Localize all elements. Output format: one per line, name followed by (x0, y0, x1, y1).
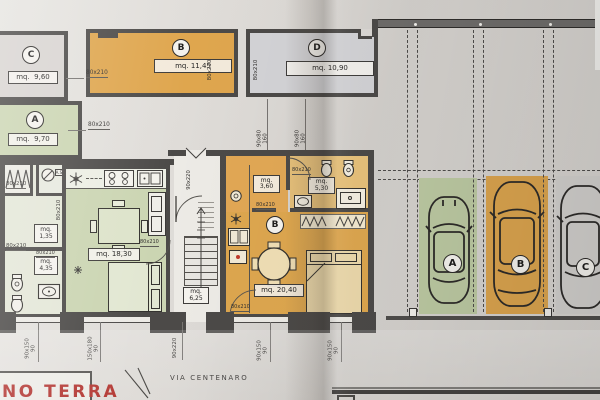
wall-dot (414, 23, 417, 26)
post (409, 308, 417, 317)
plan-title: NO TERRA (2, 382, 119, 400)
sink-bath-icon (294, 195, 312, 208)
door-dim: 80x210 (6, 243, 26, 251)
parking-divider-dashed (473, 30, 484, 312)
window-dim-vertical: 90x150 90 (327, 336, 340, 366)
door-dim-vertical: 80x210 (206, 54, 214, 86)
wall-notch-d (358, 29, 372, 39)
window (84, 316, 150, 323)
stove-icon (104, 170, 134, 187)
toilet-icon (320, 160, 333, 177)
window-dim-vertical: 90x150 90 (256, 336, 269, 366)
stove-icon (229, 250, 247, 264)
room-c-letter: C (28, 50, 35, 60)
leader-line (182, 322, 183, 360)
bath-530-area: mq. 5,30 (308, 177, 335, 194)
room-d-letter: D (313, 43, 320, 53)
chair (141, 220, 148, 233)
bidet-icon (10, 274, 24, 292)
bed-line (307, 264, 361, 265)
stairs-direction-arrow (196, 206, 206, 290)
apartmentB-letter: B (272, 220, 279, 230)
area-line2: 6,25 (189, 296, 202, 303)
window-dim-vertical: 90x80 160 (256, 126, 269, 152)
parking-c-badge: C (576, 258, 595, 277)
parking-a-letter: A (449, 258, 457, 269)
fan-icon (69, 172, 83, 186)
car-c (556, 182, 600, 312)
paper-edge (595, 0, 600, 70)
titleblock-logo-box (337, 395, 355, 400)
door-dim: 80x210 (256, 202, 275, 210)
wall-dot (479, 23, 482, 26)
area-line2: 1,35 (39, 234, 52, 241)
room-c-badge: C (22, 46, 40, 64)
window-dim-line2: 90 (333, 347, 339, 354)
window-dim-vertical: 90x80 160 (294, 126, 307, 152)
door-dim-vertical: 80x210 (252, 54, 260, 86)
floorplan-photo: C mq. 9,60 A mq. 9,70 B mq. 11,45 D mq. … (0, 0, 600, 400)
area-line2: 4,35 (39, 266, 52, 273)
leader-line (38, 322, 39, 362)
parking-b-badge: B (511, 255, 530, 274)
wardrobe-zigzag-icon (302, 216, 364, 227)
bidet-icon (342, 160, 355, 177)
pillow (151, 289, 160, 309)
titleblock-bar (332, 390, 600, 394)
bed-left-apartment (108, 262, 162, 312)
title-box: NO TERRA (0, 371, 92, 400)
wall-dot (549, 23, 552, 26)
leader-line (68, 130, 86, 131)
room-a-badge: A (26, 111, 44, 129)
door-arc (146, 240, 172, 266)
wardrobe (300, 214, 366, 229)
cabinet (148, 192, 166, 236)
living-right-area: mq. 20,40 (254, 284, 304, 297)
dining-table (98, 208, 140, 244)
window-dim-line2: 160 (300, 133, 306, 144)
window-dim-vertical: 150x180 90 (87, 334, 100, 364)
door-dim: 80x210 (86, 70, 108, 78)
pillow (310, 253, 332, 262)
pier (288, 312, 330, 333)
door-opening (186, 314, 206, 322)
wall-aptB-right (368, 150, 374, 318)
lamp-icon (74, 266, 82, 274)
pillow (151, 265, 160, 285)
bed-apartmentB (306, 250, 362, 314)
area-line2: 3,60 (260, 184, 273, 191)
north-arrow-icon (122, 366, 152, 400)
parking-top-wall (374, 19, 600, 28)
room-c: C mq. 9,60 (0, 31, 68, 101)
window (234, 316, 288, 323)
leader-line (341, 322, 342, 362)
door-dim: 80x210 (231, 304, 250, 312)
sink-icon (228, 228, 250, 246)
room-b-storage: B mq. 11,45 (86, 29, 238, 97)
parking-a-badge: A (443, 254, 462, 273)
chair (112, 200, 125, 207)
wall-notch-b (98, 29, 118, 38)
toilet-icon (10, 295, 24, 313)
pier (352, 312, 376, 333)
pier (60, 312, 84, 333)
room-d-area: mq. 10,90 (286, 61, 374, 76)
street-label: VIA CENTENARO (170, 374, 248, 382)
door-dim-vertical: 80x210 (55, 195, 63, 225)
pillow (335, 253, 357, 262)
counter-dash (86, 178, 102, 179)
shower (336, 188, 366, 209)
window-dim-vertical: 90x150 90 (24, 334, 37, 364)
window-dim-line2: 160 (262, 133, 268, 144)
stairwell-area: mq. 6,25 (183, 287, 209, 304)
apartmentB-badge: B (266, 216, 284, 234)
car-b (489, 178, 545, 310)
door-dim: 80x210 (88, 122, 110, 130)
wall-connector (372, 19, 378, 37)
titleblock-clipped-text (430, 396, 550, 400)
as-room: A.S. (36, 165, 62, 196)
titleblock-line (332, 387, 600, 389)
leader-line (270, 322, 271, 362)
leader-line (100, 322, 101, 362)
entry-dim-vertical: 90x220 (185, 165, 193, 195)
room-a-letter: A (32, 115, 39, 125)
washer-icon (41, 168, 55, 182)
entry-door-swing-icon (185, 147, 207, 159)
room-a-area: mq. 9,70 (8, 133, 58, 146)
door-dim: 80x210 (292, 167, 311, 175)
wall-aptB-top (222, 150, 374, 156)
parking-c-letter: C (582, 262, 589, 273)
cabinet-door (151, 216, 162, 232)
area-line2: 5,30 (315, 186, 328, 193)
parking-curb-line (386, 316, 600, 320)
room-b-area: mq. 11,45 (154, 59, 232, 73)
room-d: D mq. 10,90 (246, 29, 378, 97)
bed-line (148, 263, 149, 311)
window-dim-line2: 90 (93, 345, 99, 352)
window-dim-line2: 90 (30, 345, 36, 352)
window-dim-line2: 90 (262, 347, 268, 354)
parking-b-letter: B (517, 259, 525, 270)
round-table (252, 242, 296, 286)
washer-icon (230, 190, 242, 202)
room-c-area: mq. 9,60 (8, 71, 58, 84)
sink-bath-icon (38, 284, 60, 299)
car-a (425, 194, 473, 306)
hall-360-area: mq. 3,60 (253, 175, 280, 193)
chair (90, 220, 97, 233)
post (544, 308, 552, 317)
shower-drain (348, 196, 352, 200)
blanket-fold (307, 263, 327, 283)
leader-line (66, 78, 84, 79)
door-dim-vertical: 90x220 (171, 333, 179, 363)
cabinet-door (151, 196, 162, 212)
door-dim: 80x210 (36, 250, 55, 258)
room-b-badge: B (172, 39, 190, 57)
bath-435-area: mq. 4,35 (34, 256, 58, 275)
living-left-area: mq. 18,30 (88, 248, 140, 261)
parking-divider-dashed (407, 30, 418, 312)
hall-135-area: mq. 1,35 (34, 224, 58, 243)
pier (206, 312, 234, 333)
sink-icon (137, 170, 163, 187)
pier (150, 312, 186, 333)
door-dim: 80x210 (6, 181, 26, 189)
fan-icon (230, 213, 242, 225)
pier (0, 312, 16, 333)
room-d-badge: D (308, 39, 326, 57)
room-b-letter: B (178, 43, 185, 53)
